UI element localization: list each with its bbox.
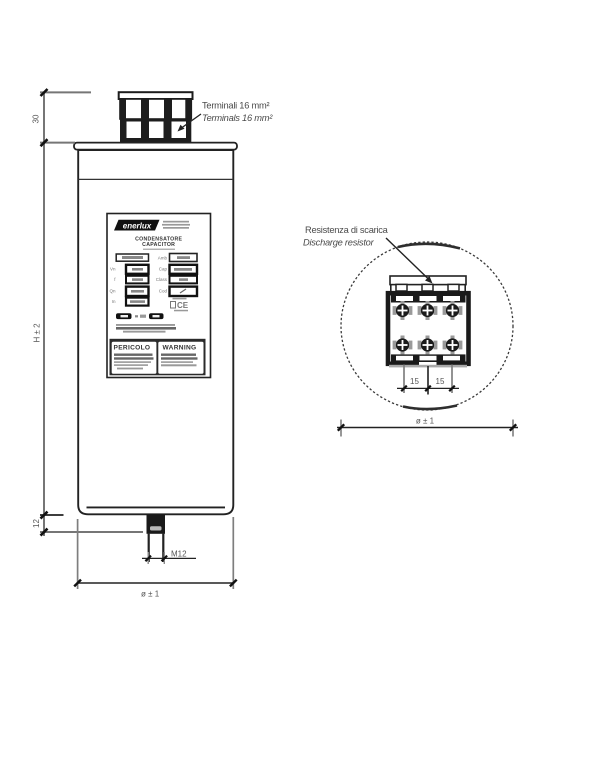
svg-text:CE: CE (177, 301, 189, 310)
svg-text:ø ± 1: ø ± 1 (416, 416, 435, 425)
svg-text:Class: Class (156, 277, 168, 282)
svg-text:15: 15 (410, 377, 419, 386)
svg-text:enerlux: enerlux (123, 221, 152, 230)
svg-text:30: 30 (32, 114, 41, 123)
svg-text:ø ± 1: ø ± 1 (141, 590, 160, 599)
svg-text:Vn: Vn (110, 267, 116, 272)
svg-text:Cap: Cap (159, 267, 168, 272)
svg-text:Cod: Cod (159, 288, 168, 293)
svg-text:M12: M12 (171, 550, 187, 559)
svg-text:Amb: Amb (158, 255, 168, 260)
svg-text:Qn: Qn (109, 288, 116, 293)
svg-text:CAPACITOR: CAPACITOR (142, 242, 175, 248)
svg-text:WARNING: WARNING (163, 345, 197, 352)
svg-text:Terminals 16 mm²: Terminals 16 mm² (202, 113, 273, 123)
svg-text:15: 15 (436, 377, 445, 386)
svg-text:PERICOLO: PERICOLO (114, 345, 151, 352)
svg-text:Discharge resistor: Discharge resistor (303, 237, 375, 247)
svg-text:12: 12 (32, 519, 41, 528)
svg-text:Resistenza di scarica: Resistenza di scarica (305, 225, 389, 235)
svg-text:Terminali 16 mm²: Terminali 16 mm² (202, 101, 269, 111)
svg-text:H ± 2: H ± 2 (33, 323, 42, 343)
svg-text:In: In (112, 299, 116, 304)
